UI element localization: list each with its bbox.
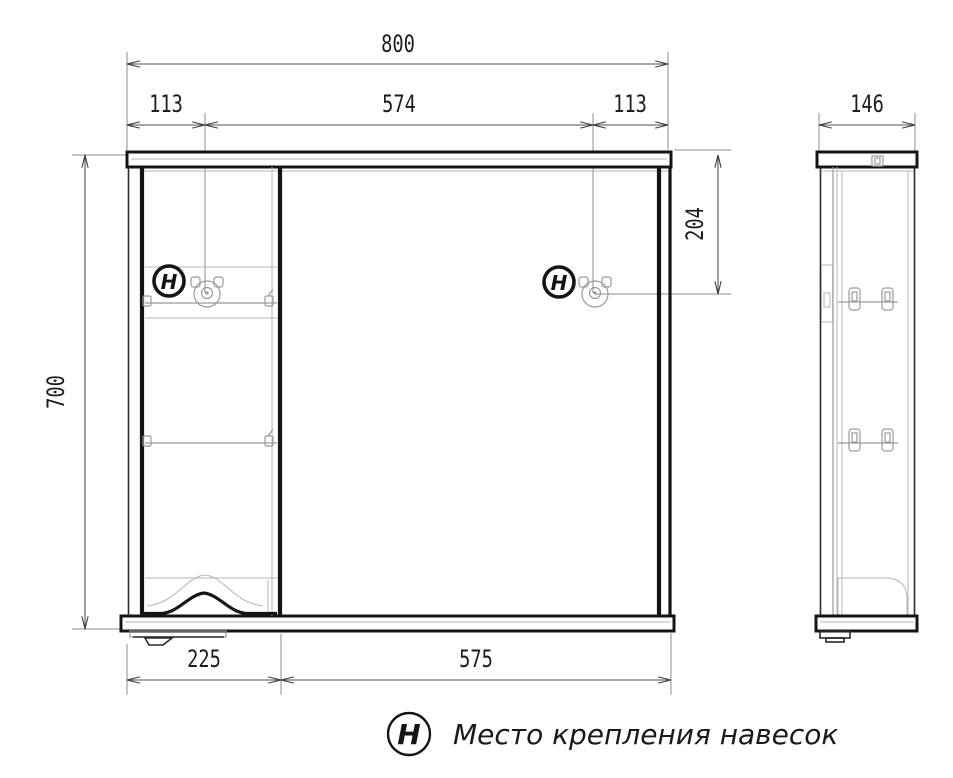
hanger-mark-icon: H [154, 266, 184, 296]
front-view: 800 113 574 113 700 204 225 575 [43, 31, 731, 695]
front-shelf-column [130, 267, 277, 645]
front-extension-lines [72, 52, 731, 695]
side-view: 146 [816, 91, 917, 642]
dim-label-113-left: 113 [149, 91, 183, 119]
dim-label-574: 574 [382, 91, 416, 119]
dim-label-575: 575 [459, 646, 493, 674]
legend: H Место крепления навесок [388, 713, 838, 755]
side-top-panel [817, 152, 917, 167]
hanger-mark-label: H [161, 270, 178, 294]
front-foot [145, 638, 172, 645]
dim-label-800: 800 [381, 31, 415, 59]
hanger-mark-icon: H [544, 267, 574, 297]
dim-label-700: 700 [43, 375, 71, 409]
side-apron-profile [838, 578, 907, 616]
hanger-mark-label: H [551, 271, 568, 295]
front-hangers: H H [154, 266, 611, 307]
front-wave-apron [144, 593, 277, 614]
hanger-fitting-icon [579, 277, 611, 307]
dim-label-113-right: 113 [613, 91, 647, 119]
dim-label-225: 225 [187, 646, 221, 674]
dim-label-146: 146 [850, 91, 884, 119]
technical-drawing-page: 800 113 574 113 700 204 225 575 [0, 0, 953, 778]
legend-symbol-icon: H [388, 713, 430, 755]
dim-label-204: 204 [682, 207, 710, 241]
front-bottom-panel [121, 616, 674, 631]
front-cabinet-body [121, 152, 674, 631]
legend-symbol: H [397, 718, 420, 751]
legend-label: Место крепления навесок [453, 718, 838, 751]
cabinet-drawing: 800 113 574 113 700 204 225 575 [0, 0, 953, 778]
side-bottom-panel [816, 616, 917, 631]
side-shelf-supports [838, 288, 898, 451]
